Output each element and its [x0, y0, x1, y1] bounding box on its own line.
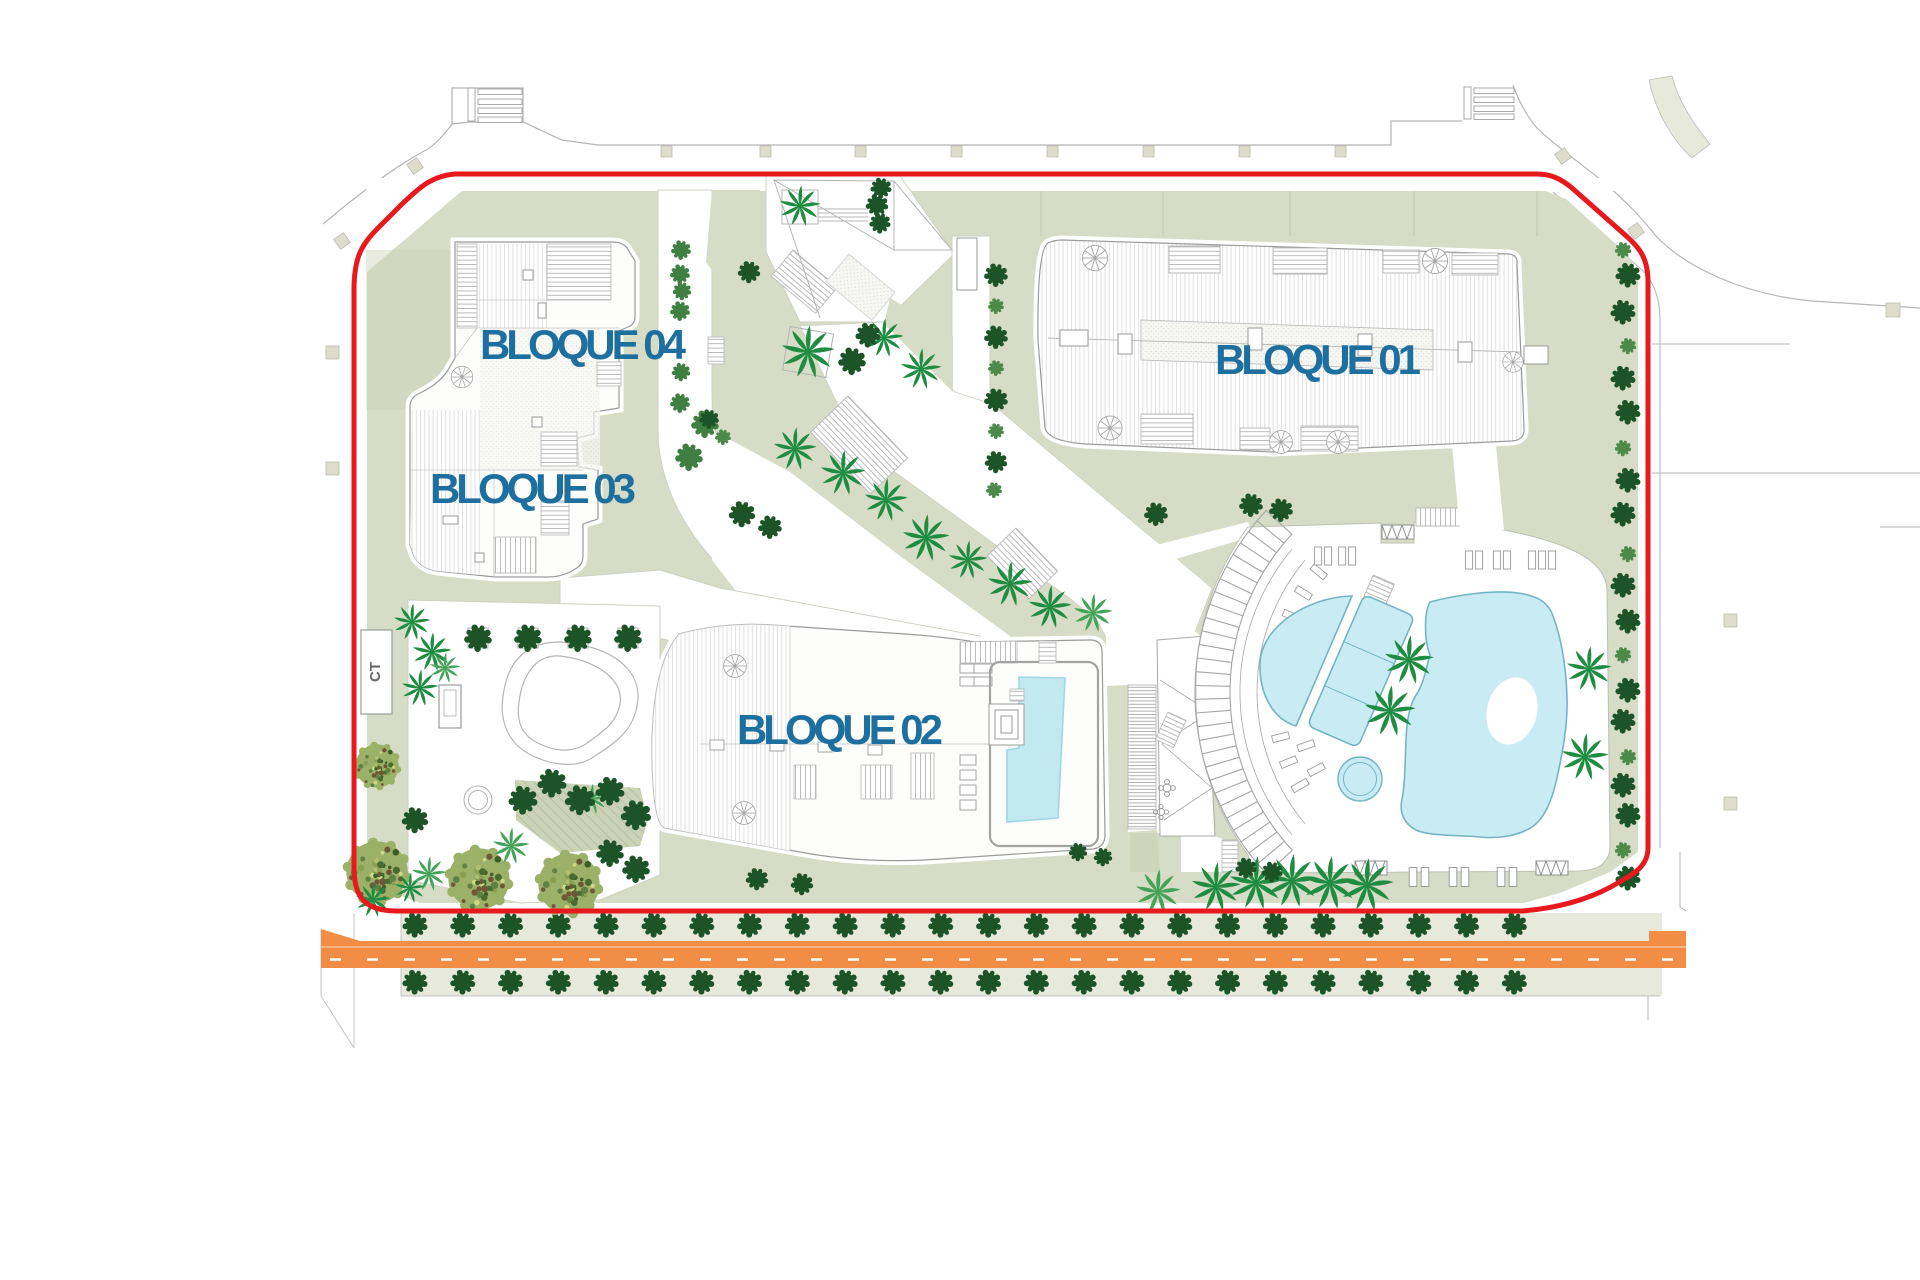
- svg-text:CT: CT: [367, 662, 384, 682]
- svg-text:BLOQUE 04: BLOQUE 04: [480, 321, 687, 368]
- svg-text:BLOQUE 02: BLOQUE 02: [737, 706, 942, 753]
- svg-text:BLOQUE 01: BLOQUE 01: [1215, 336, 1421, 383]
- svg-text:BLOQUE 03: BLOQUE 03: [430, 465, 635, 512]
